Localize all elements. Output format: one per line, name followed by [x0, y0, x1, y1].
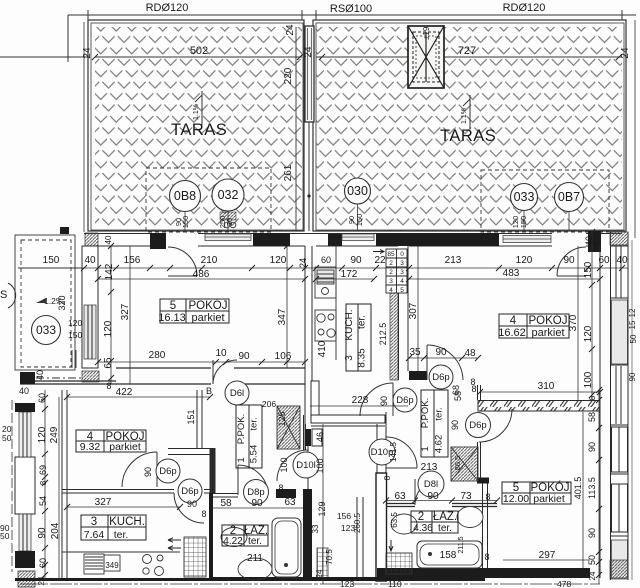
- svg-text:parkiet: parkiet: [531, 327, 564, 339]
- svg-text:212.5: 212.5: [378, 323, 388, 346]
- svg-text:307: 307: [408, 302, 419, 319]
- svg-text:P.POK.: P.POK.: [236, 414, 247, 444]
- svg-text:120: 120: [103, 320, 114, 337]
- svg-text:24: 24: [588, 571, 597, 580]
- svg-text:8: 8: [201, 509, 206, 519]
- svg-text:1.1%: 1.1%: [193, 104, 200, 120]
- svg-text:D6p: D6p: [159, 466, 176, 477]
- svg-text:D8p: D8p: [247, 487, 264, 498]
- svg-text:90: 90: [350, 255, 362, 266]
- svg-text:156: 156: [124, 255, 141, 266]
- svg-text:90: 90: [251, 498, 263, 509]
- svg-text:1: 1: [420, 446, 431, 451]
- svg-text:113.5: 113.5: [587, 477, 597, 499]
- svg-text:24: 24: [315, 569, 324, 578]
- svg-text:0B8: 0B8: [174, 189, 196, 203]
- svg-text:58: 58: [220, 498, 232, 509]
- svg-text:123: 123: [340, 579, 354, 588]
- svg-text:40: 40: [19, 386, 29, 396]
- svg-text:141.5: 141.5: [389, 441, 398, 462]
- svg-text:486: 486: [193, 269, 210, 280]
- svg-text:90: 90: [143, 467, 153, 477]
- svg-text:100: 100: [315, 458, 325, 473]
- svg-text:150: 150: [519, 216, 528, 229]
- svg-text:120: 120: [68, 318, 82, 328]
- svg-text:90: 90: [187, 499, 197, 509]
- svg-text:90: 90: [427, 491, 439, 502]
- svg-text:20: 20: [225, 218, 234, 226]
- svg-text:220: 220: [283, 67, 294, 84]
- svg-text:8.35: 8.35: [357, 348, 368, 368]
- svg-text:40: 40: [584, 236, 594, 246]
- svg-text:5: 5: [170, 300, 176, 312]
- svg-text:8: 8: [383, 475, 392, 480]
- svg-text:ter.: ter.: [438, 523, 452, 534]
- svg-text:3: 3: [91, 516, 97, 528]
- svg-text:24: 24: [298, 258, 308, 268]
- svg-text:4: 4: [510, 315, 517, 327]
- svg-text:90: 90: [587, 528, 597, 538]
- svg-text:90: 90: [563, 255, 575, 266]
- svg-text:ŁAZ.: ŁAZ.: [433, 511, 457, 523]
- svg-text:249: 249: [49, 426, 60, 443]
- svg-text:D10l: D10l: [296, 460, 316, 471]
- svg-text:158: 158: [440, 550, 457, 561]
- svg-text:85: 85: [387, 251, 395, 258]
- svg-text:211: 211: [247, 553, 263, 564]
- svg-text:4.36: 4.36: [413, 523, 433, 534]
- svg-text:90: 90: [379, 396, 389, 406]
- svg-text:129: 129: [317, 501, 327, 516]
- svg-text:60: 60: [38, 558, 48, 568]
- svg-text:172: 172: [341, 269, 358, 280]
- svg-text:7.64: 7.64: [84, 529, 105, 541]
- svg-text:0B7: 0B7: [558, 190, 580, 204]
- svg-text:90: 90: [238, 351, 250, 362]
- svg-text:150: 150: [43, 255, 60, 266]
- svg-text:90: 90: [435, 347, 447, 358]
- svg-text:8: 8: [588, 395, 597, 400]
- svg-text:40: 40: [35, 370, 45, 380]
- svg-text:ter.: ter.: [249, 417, 260, 430]
- svg-text:478: 478: [557, 579, 571, 588]
- svg-text:40: 40: [616, 255, 628, 266]
- svg-text:70.5: 70.5: [325, 549, 334, 565]
- svg-text:3: 3: [344, 355, 355, 361]
- svg-text:151: 151: [186, 409, 196, 424]
- svg-text:60: 60: [37, 393, 47, 403]
- svg-text:60: 60: [598, 255, 610, 266]
- svg-text:2: 2: [389, 269, 393, 276]
- svg-text:260.5: 260.5: [353, 512, 362, 533]
- svg-text:58: 58: [453, 391, 463, 401]
- svg-text:297: 297: [539, 550, 556, 561]
- svg-text:4: 4: [400, 278, 404, 285]
- svg-text:2: 2: [418, 511, 424, 523]
- svg-text:65: 65: [103, 357, 114, 369]
- svg-text:370: 370: [568, 314, 579, 331]
- svg-text:261: 261: [283, 164, 294, 181]
- svg-text:030: 030: [347, 184, 368, 198]
- svg-text:1.1%: 1.1%: [461, 108, 468, 124]
- svg-text:280: 280: [149, 350, 166, 361]
- svg-text:RSØ100: RSØ100: [330, 3, 372, 15]
- svg-text:2: 2: [389, 260, 393, 267]
- svg-text:349: 349: [105, 561, 119, 570]
- svg-text:S: S: [0, 289, 7, 301]
- svg-text:54: 54: [38, 496, 48, 506]
- svg-text:22: 22: [374, 255, 386, 266]
- svg-text:48: 48: [464, 348, 476, 359]
- svg-text:RDØ120: RDØ120: [146, 2, 189, 14]
- svg-text:8: 8: [106, 381, 111, 391]
- svg-text:204: 204: [50, 522, 61, 539]
- svg-text:35: 35: [409, 347, 421, 358]
- svg-text:327: 327: [120, 303, 131, 320]
- svg-text:RDØ120: RDØ120: [503, 2, 546, 14]
- svg-text:1: 1: [236, 457, 247, 462]
- svg-text:483: 483: [503, 268, 520, 279]
- svg-text:KUCH.: KUCH.: [109, 516, 145, 528]
- svg-text:KUCH.: KUCH.: [344, 309, 355, 340]
- svg-text:8: 8: [39, 480, 48, 485]
- svg-text:24: 24: [620, 47, 631, 59]
- svg-text:3: 3: [400, 269, 404, 276]
- svg-text:110: 110: [388, 579, 402, 588]
- svg-text:125: 125: [277, 411, 287, 426]
- svg-text:150: 150: [181, 216, 190, 229]
- svg-text:5: 5: [400, 287, 404, 294]
- svg-text:727: 727: [458, 45, 476, 57]
- svg-text:TARAS: TARAS: [440, 127, 496, 145]
- svg-text:120: 120: [37, 426, 48, 443]
- svg-text:D6l: D6l: [230, 388, 244, 399]
- svg-text:ter.: ter.: [248, 536, 262, 547]
- svg-text:40: 40: [84, 255, 96, 266]
- svg-text:63.5: 63.5: [390, 512, 399, 528]
- svg-text:033: 033: [36, 323, 56, 337]
- svg-text:100: 100: [279, 457, 289, 472]
- svg-text:parkiet: parkiet: [533, 493, 565, 505]
- svg-text:90: 90: [450, 420, 460, 430]
- svg-text:POKÓJ: POKÓJ: [529, 314, 568, 327]
- svg-text:D8l: D8l: [424, 479, 438, 490]
- svg-text:24: 24: [303, 46, 314, 58]
- svg-text:58: 58: [587, 412, 597, 422]
- svg-text:73: 73: [460, 491, 472, 502]
- svg-text:327: 327: [95, 497, 112, 508]
- svg-text:33: 33: [311, 524, 320, 533]
- svg-text:24: 24: [82, 47, 93, 59]
- svg-text:B: B: [206, 386, 212, 396]
- svg-text:12.00: 12.00: [503, 493, 529, 505]
- svg-text:502: 502: [190, 45, 208, 57]
- svg-text:9.32: 9.32: [80, 441, 101, 453]
- svg-text:8: 8: [278, 483, 283, 493]
- svg-text:90: 90: [37, 527, 48, 539]
- svg-text:120: 120: [516, 255, 533, 266]
- svg-text:347: 347: [277, 308, 288, 325]
- svg-text:D6p: D6p: [469, 420, 486, 431]
- svg-text:P.POK.: P.POK.: [420, 398, 431, 428]
- svg-text:ter.: ter.: [434, 407, 445, 420]
- svg-text:8: 8: [470, 377, 475, 387]
- svg-text:206: 206: [262, 399, 276, 409]
- svg-text:TARAS: TARAS: [171, 121, 227, 139]
- svg-text:120: 120: [270, 255, 287, 266]
- svg-text:16.62: 16.62: [498, 327, 526, 339]
- svg-text:69: 69: [38, 465, 48, 475]
- svg-text:D6p: D6p: [181, 486, 198, 497]
- svg-text:401.5: 401.5: [573, 477, 583, 500]
- svg-text:D6p: D6p: [432, 372, 449, 383]
- svg-text:228: 228: [352, 395, 369, 406]
- svg-text:POKÓJ: POKÓJ: [189, 299, 228, 312]
- svg-text:150: 150: [355, 214, 364, 227]
- svg-text:150: 150: [68, 330, 82, 340]
- svg-text:46: 46: [315, 432, 325, 442]
- svg-text:15: 15: [628, 320, 637, 329]
- svg-text:142: 142: [104, 263, 115, 280]
- svg-text:213: 213: [445, 255, 462, 266]
- svg-text:parkiet: parkiet: [109, 441, 141, 453]
- svg-text:8: 8: [484, 552, 489, 562]
- svg-text:150: 150: [583, 261, 594, 278]
- svg-text:±19: ±19: [422, 26, 431, 40]
- svg-text:90: 90: [628, 372, 637, 381]
- svg-text:4: 4: [389, 287, 393, 294]
- svg-text:40: 40: [104, 235, 113, 244]
- svg-text:63: 63: [394, 491, 406, 502]
- svg-text:24: 24: [37, 576, 46, 585]
- svg-text:4.62: 4.62: [434, 435, 445, 454]
- svg-text:8: 8: [485, 492, 490, 502]
- svg-text:310: 310: [538, 381, 555, 392]
- svg-text:D6p: D6p: [396, 395, 413, 406]
- svg-text:3: 3: [389, 278, 393, 285]
- svg-text:211.5: 211.5: [458, 536, 465, 553]
- svg-text:10: 10: [215, 348, 227, 359]
- svg-text:parkiet: parkiet: [191, 312, 224, 324]
- svg-text:50: 50: [629, 334, 638, 343]
- svg-text:422: 422: [116, 387, 133, 398]
- svg-text:100: 100: [583, 371, 594, 388]
- svg-text:3: 3: [400, 260, 404, 267]
- svg-text:1.2‰: 1.2‰: [44, 296, 65, 306]
- svg-text:5.54: 5.54: [249, 445, 260, 464]
- svg-text:156: 156: [337, 511, 351, 521]
- svg-text:032: 032: [218, 188, 239, 202]
- svg-text:63: 63: [284, 497, 296, 508]
- svg-text:0: 0: [400, 251, 404, 258]
- svg-text:210: 210: [201, 255, 218, 266]
- svg-text:213: 213: [421, 462, 438, 473]
- svg-text:50: 50: [2, 433, 12, 443]
- svg-text:ter.: ter.: [357, 315, 368, 329]
- svg-text:4.22: 4.22: [223, 536, 243, 547]
- svg-text:60: 60: [321, 255, 331, 265]
- svg-text:90: 90: [587, 442, 597, 452]
- svg-text:50: 50: [0, 531, 10, 541]
- svg-text:86.5: 86.5: [453, 456, 462, 471]
- svg-text:16.13: 16.13: [158, 312, 186, 324]
- svg-text:50: 50: [587, 555, 597, 565]
- svg-text:033: 033: [514, 190, 535, 204]
- svg-text:ter.: ter.: [114, 529, 129, 541]
- svg-text:24: 24: [285, 24, 296, 36]
- svg-text:106: 106: [275, 351, 292, 362]
- svg-text:12: 12: [628, 308, 637, 317]
- svg-text:120: 120: [583, 325, 594, 342]
- svg-text:410: 410: [317, 340, 328, 357]
